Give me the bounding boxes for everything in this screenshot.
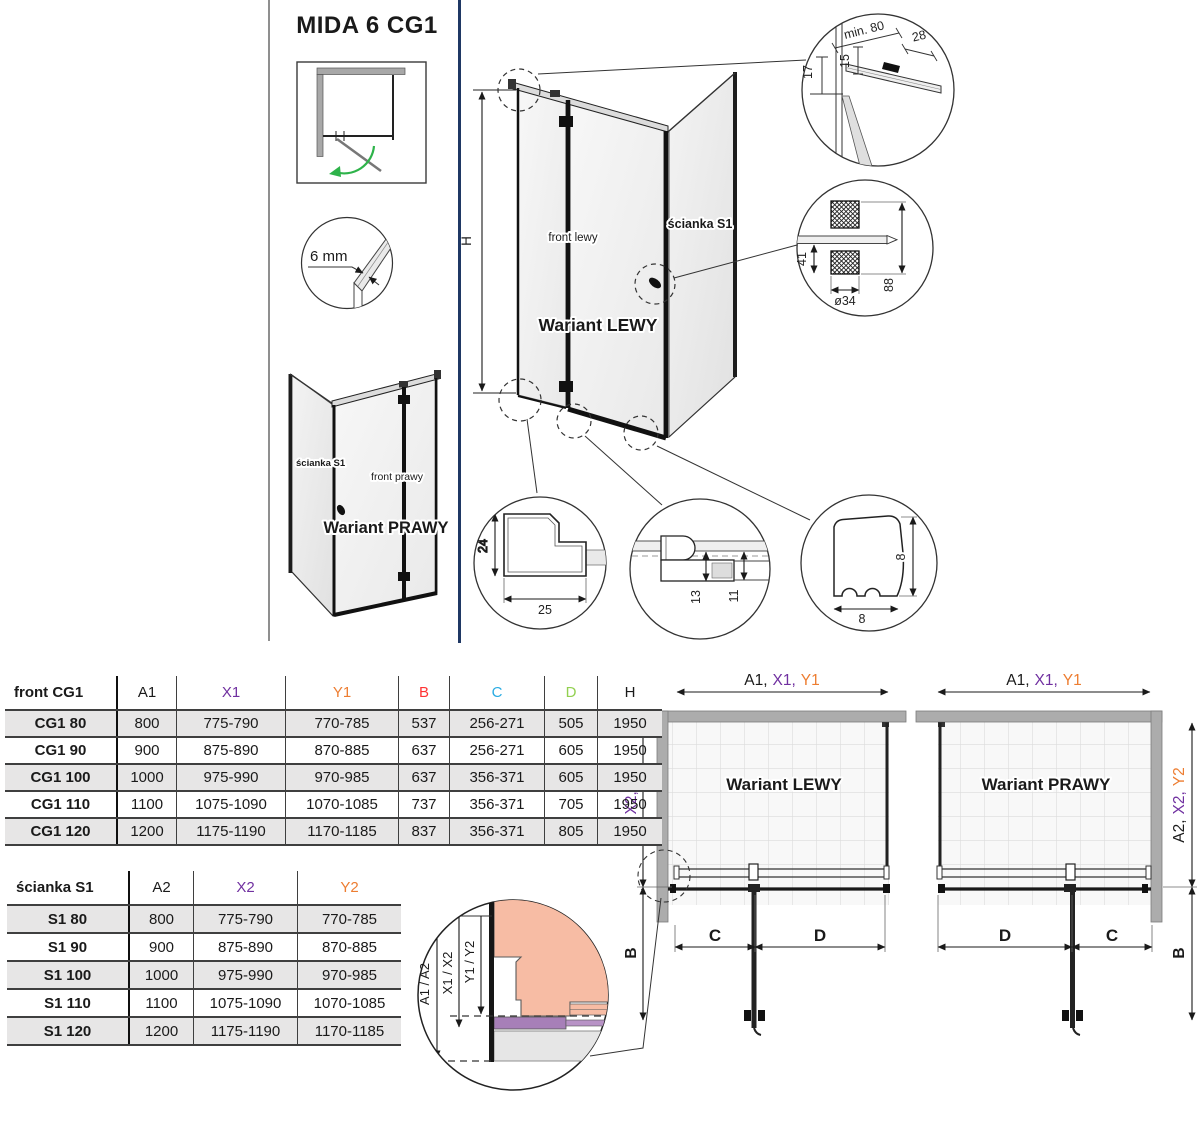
table-cell: 1075-1090 (194, 989, 298, 1017)
table-cell: 975-990 (177, 764, 286, 791)
detail-wall-profile: min. 80 28 15 17 (801, 14, 954, 166)
table-cell: 737 (399, 791, 450, 818)
table-cell: 775-790 (177, 710, 286, 737)
enclosure-3d-lewy: H front lewy ścianka S1 Wariant LEWY (459, 60, 810, 520)
plan-variant-name: Wariant PRAWY (982, 775, 1111, 794)
table-cell: 900 (129, 933, 194, 961)
column-header: Y1 (286, 676, 399, 710)
table-cell: 1175-1190 (177, 818, 286, 845)
row-header: CG1 80 (5, 710, 117, 737)
table-cell: 805 (545, 818, 598, 845)
dim-24: 24 (476, 539, 490, 553)
table-cell: 1200 (117, 818, 177, 845)
table-cell: 1950 (598, 764, 663, 791)
table-cell: 1175-1190 (194, 1017, 298, 1045)
table-row: S1 11011001075-10901070-1085 (7, 989, 401, 1017)
dim-seal-height: 8 (894, 553, 908, 560)
table-cell: 605 (545, 764, 598, 791)
row-header: S1 120 (7, 1017, 129, 1045)
dim-a1a2: A1 / A2 (417, 963, 432, 1005)
wall-edge (489, 898, 494, 1062)
table-cell: 1000 (129, 961, 194, 989)
table-row: CG1 12012001175-11901170-1185837356-3718… (5, 818, 662, 845)
knurl-upper (831, 201, 859, 228)
detail-glass-thickness: 6 mm (302, 218, 396, 311)
dim-x1x2: X1 / X2 (440, 952, 455, 995)
table-row: CG1 1001000975-990970-985637356-37160519… (5, 764, 662, 791)
row-header: S1 100 (7, 961, 129, 989)
table-cell: 975-990 (194, 961, 298, 989)
detail-bottom-rail: 13 11 (630, 499, 772, 639)
column-header: B (399, 676, 450, 710)
wall-bar-left (317, 75, 323, 157)
table-cell: 356-371 (450, 791, 545, 818)
side-wall-glass (292, 375, 333, 616)
table-row: S1 80800775-790770-785 (7, 905, 401, 933)
wall-label: ścianka S1 (668, 217, 733, 231)
dim-a1x1y1: A1,X1,Y1 (744, 672, 820, 689)
row-header: S1 90 (7, 933, 129, 961)
table-cell: 1170-1185 (298, 1017, 402, 1045)
dim-41: 41 (795, 252, 809, 266)
column-header: front CG1 (5, 676, 117, 710)
table-cell: 1000 (117, 764, 177, 791)
column-header: X2 (194, 871, 298, 905)
dim-15: 15 (838, 54, 852, 68)
knurl-lower (831, 251, 859, 274)
column-header: C (450, 676, 545, 710)
header-row: ścianka S1A2X2Y2 (7, 871, 401, 905)
table-cell: 1950 (598, 818, 663, 845)
dim-d: D (999, 926, 1011, 945)
table-row: CG1 80800775-790770-785537256-2715051950 (5, 710, 662, 737)
dim-a2x2y2: A2,X2,Y2 (1171, 767, 1188, 843)
table-cell: 1070-1085 (286, 791, 399, 818)
table-row: CG1 11011001075-10901070-1085737356-3717… (5, 791, 662, 818)
table-cell: 605 (545, 737, 598, 764)
front-label: front lewy (548, 232, 597, 244)
dim-b: B (1171, 947, 1188, 958)
wall-top (657, 711, 906, 722)
stabilizer-clamp (749, 864, 758, 880)
open-door (1070, 890, 1075, 1028)
plan-prawy: Wariant PRAWY A1,X1,Y1 A2,X2,Y2 B D C (916, 672, 1197, 1035)
table-cell: 1950 (598, 737, 663, 764)
table-cell: 770-785 (298, 905, 402, 933)
dim-a1x1y1: A1,X1,Y1 (1006, 672, 1082, 689)
table-cell: 900 (117, 737, 177, 764)
hinge-bottom (398, 572, 410, 581)
height-dim-label: H (459, 236, 474, 246)
table-cell: 356-371 (450, 764, 545, 791)
row-header: CG1 120 (5, 818, 117, 845)
detail-seal: 8 8 (801, 495, 937, 631)
enclosure-3d-prawy: ścianka S1 front prawy Wariant PRAWY (289, 370, 449, 616)
table-cell: 537 (399, 710, 450, 737)
dim-c: C (1106, 926, 1118, 945)
fixed-panel-glass (518, 88, 566, 407)
pictogram-top-view (297, 62, 426, 183)
table-row: S1 1001000975-990970-985 (7, 961, 401, 989)
column-header: A1 (117, 676, 177, 710)
table-cell: 770-785 (286, 710, 399, 737)
glass-thickness-label: 6 mm (310, 248, 348, 265)
table-cell: 870-885 (298, 933, 402, 961)
wall-top (916, 711, 1162, 722)
dim-dia34: ø34 (834, 294, 856, 308)
table-cell: 837 (399, 818, 450, 845)
table-cell: 705 (545, 791, 598, 818)
table-cell: 875-890 (194, 933, 298, 961)
table-cell: 256-271 (450, 710, 545, 737)
plan-variant-name: Wariant LEWY (726, 775, 842, 794)
table-cell: 970-985 (286, 764, 399, 791)
side-wall-glass (669, 73, 735, 437)
stabilizer-clamp (1066, 864, 1075, 880)
table-cell: 1170-1185 (286, 818, 399, 845)
column-header: D (545, 676, 598, 710)
door-glass (570, 101, 664, 437)
front-label: front prawy (371, 471, 424, 483)
scianka-s1-table: ścianka S1A2X2Y2S1 80800775-790770-785S1… (7, 871, 401, 1046)
detail-adjustment-range: A1 / A2 X1 / X2 Y1 / Y2 (417, 898, 612, 1090)
table-cell: 800 (129, 905, 194, 933)
technical-sheet: MIDA 6 CG1 6 mm (0, 0, 1200, 1135)
table-cell: 1100 (117, 791, 177, 818)
table-cell: 637 (399, 737, 450, 764)
table-cell: 1100 (129, 989, 194, 1017)
row-header: S1 80 (7, 905, 129, 933)
tray-section (494, 1031, 612, 1061)
column-header: X1 (177, 676, 286, 710)
table-cell: 1950 (598, 710, 663, 737)
dim-d: D (814, 926, 826, 945)
table-cell: 870-885 (286, 737, 399, 764)
column-header: A2 (129, 871, 194, 905)
dim-17: 17 (801, 65, 815, 79)
variant-name: Wariant LEWY (539, 315, 658, 335)
wall-bar-top (317, 68, 405, 75)
table-cell: 1200 (129, 1017, 194, 1045)
column-header: H (598, 676, 663, 710)
table-cell: 1075-1090 (177, 791, 286, 818)
hinge-bottom (559, 381, 573, 392)
header-row: front CG1A1X1Y1BCDH (5, 676, 662, 710)
table-cell: 875-890 (177, 737, 286, 764)
column-header: ścianka S1 (7, 871, 129, 905)
row-header: S1 110 (7, 989, 129, 1017)
table-row: S1 12012001175-11901170-1185 (7, 1017, 401, 1045)
wall-label: ścianka S1 (296, 458, 346, 469)
dim-y1y2: Y1 / Y2 (462, 941, 477, 983)
table-cell: 1950 (598, 791, 663, 818)
dim-seal-width: 8 (859, 612, 866, 626)
dim-b: B (623, 947, 640, 958)
table-cell: 775-790 (194, 905, 298, 933)
table-cell: 505 (545, 710, 598, 737)
row-header: CG1 100 (5, 764, 117, 791)
dim-88: 88 (882, 278, 896, 292)
table-cell: 1070-1085 (298, 989, 402, 1017)
dim-25: 25 (538, 603, 552, 617)
front-glass (334, 378, 437, 616)
wall-right (1151, 711, 1162, 922)
variant-name: Wariant PRAWY (324, 519, 449, 537)
table-row: CG1 90900875-890870-885637256-2716051950 (5, 737, 662, 764)
table-cell: 356-371 (450, 818, 545, 845)
front-cg1-table: front CG1A1X1Y1BCDHCG1 80800775-790770-7… (5, 676, 662, 846)
open-door (752, 890, 757, 1028)
hinge-top (398, 395, 410, 404)
table-cell: 256-271 (450, 737, 545, 764)
row-header: CG1 110 (5, 791, 117, 818)
seal-section (494, 1017, 566, 1029)
row-header: CG1 90 (5, 737, 117, 764)
column-header: Y2 (298, 871, 402, 905)
table-cell: 637 (399, 764, 450, 791)
detail-corner-profile: 24 25 (474, 497, 612, 629)
table-cell: 970-985 (298, 961, 402, 989)
dim-11: 11 (727, 589, 741, 602)
table-cell: 800 (117, 710, 177, 737)
dim-13: 13 (689, 590, 703, 604)
dim-c: C (709, 926, 721, 945)
hinge-top (559, 116, 573, 127)
table-row: S1 90900875-890870-885 (7, 933, 401, 961)
detail-handle: 41 ø34 88 (795, 180, 933, 316)
